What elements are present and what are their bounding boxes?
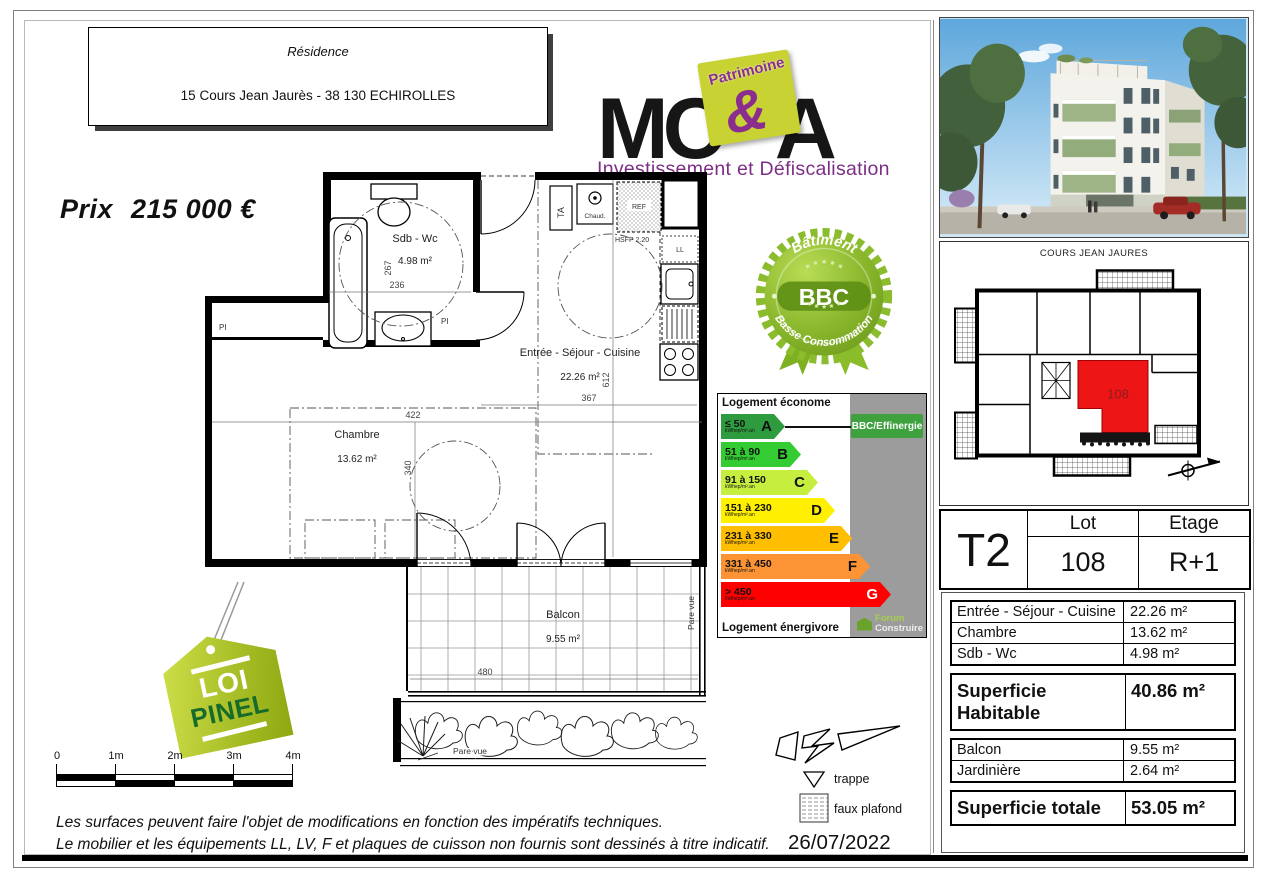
balcony-doors bbox=[417, 513, 692, 567]
table-row: Superficie Habitable 40.86 m² bbox=[952, 675, 1234, 729]
svg-text:4.98 m²: 4.98 m² bbox=[398, 256, 433, 267]
annex-surfaces-group: Balcon 9.55 m² Jardinière 2.64 m² bbox=[950, 738, 1236, 783]
lot-value: 108 bbox=[1027, 537, 1138, 588]
fixture-labels: TA Chaud. REF HSFP 2.20 LL PI PI Pare vu… bbox=[219, 204, 696, 756]
energy-connector-line bbox=[785, 426, 851, 428]
jardiniere bbox=[397, 701, 706, 766]
svg-text:TA: TA bbox=[556, 207, 566, 218]
energy-bar-d: 151 à 230kWhep/m².anD bbox=[721, 498, 835, 523]
svg-text:Pare vue: Pare vue bbox=[686, 596, 696, 630]
svg-text:236: 236 bbox=[389, 280, 404, 290]
scale-tick bbox=[233, 764, 234, 774]
mca-logo-letters: MCPatrimoine&A bbox=[597, 56, 912, 152]
energy-bars: ≤ 50kWhep/m².anA 51 à 90kWhep/m².anB 91 … bbox=[721, 414, 891, 610]
scale-label: 4m bbox=[285, 750, 300, 762]
footer-line1: Les surfaces peuvent faire l'objet de mo… bbox=[56, 812, 770, 834]
mca-logo: MCPatrimoine&A Investissement et Défisca… bbox=[597, 56, 912, 181]
svg-text:Balcon: Balcon bbox=[546, 609, 580, 621]
unit-type: T2 bbox=[941, 511, 1027, 588]
svg-text:LL: LL bbox=[676, 247, 684, 254]
house-icon bbox=[857, 618, 872, 631]
street-label: COURS JEAN JAURES bbox=[940, 248, 1248, 259]
svg-text:267: 267 bbox=[383, 260, 393, 275]
svg-text:PI: PI bbox=[219, 323, 227, 332]
entry-door bbox=[481, 171, 535, 234]
lot-header: Lot bbox=[1027, 511, 1138, 537]
etage-header: Etage bbox=[1138, 511, 1249, 537]
residence-address-box: Résidence 15 Cours Jean Jaurès - 38 130 … bbox=[88, 27, 548, 126]
scale-label: 0 bbox=[54, 750, 60, 762]
bbc-effinergie-badge: BBC/Effinergie bbox=[851, 414, 923, 438]
logo-mc-text: MC bbox=[597, 81, 719, 177]
surface-table: Entrée - Séjour - Cuisine 22.26 m² Chamb… bbox=[941, 592, 1245, 853]
scale-segment bbox=[174, 780, 234, 787]
scale-tick bbox=[115, 764, 116, 774]
bathroom-door bbox=[476, 292, 524, 340]
tag-hole bbox=[205, 644, 216, 655]
svg-text:612: 612 bbox=[601, 372, 611, 387]
svg-text:Sdb - Wc: Sdb - Wc bbox=[392, 233, 438, 245]
logo-patrimoine-tile: Patrimoine& bbox=[697, 49, 801, 146]
brochure-page: Résidence 15 Cours Jean Jaurès - 38 130 … bbox=[0, 0, 1269, 881]
energy-bar-b: 51 à 90kWhep/m².anB bbox=[721, 442, 801, 467]
energy-title-bottom: Logement énergivore bbox=[722, 622, 839, 634]
scale-segment bbox=[115, 780, 175, 787]
energy-bar-g: > 450kWhep/m².anG bbox=[721, 582, 891, 607]
energy-rating-chart: Logement économe ≤ 50kWhep/m².anA 51 à 9… bbox=[717, 393, 927, 638]
table-row: Entrée - Séjour - Cuisine 22.26 m² bbox=[952, 602, 1234, 622]
pinel-tag-strings bbox=[150, 580, 310, 650]
svg-text:Chambre: Chambre bbox=[334, 429, 379, 441]
table-row: Balcon 9.55 m² bbox=[952, 740, 1234, 760]
north-arrow-icon bbox=[776, 726, 900, 763]
residence-label: Résidence bbox=[89, 44, 547, 59]
scale-tick bbox=[174, 764, 175, 774]
scale-bar: 0 1m 2m 3m 4m bbox=[55, 750, 300, 792]
room-labels: Sdb - Wc 4.98 m² Entrée - Séjour - Cuisi… bbox=[334, 233, 640, 645]
svg-text:HSFP 2.20: HSFP 2.20 bbox=[615, 237, 649, 244]
footer-disclaimer: Les surfaces peuvent faire l'objet de mo… bbox=[56, 812, 770, 856]
svg-text:422: 422 bbox=[405, 410, 420, 420]
scale-label: 2m bbox=[167, 750, 182, 762]
unit-summary-table: T2 Lot Etage 108 R+1 bbox=[939, 509, 1251, 590]
footer-line2: Le mobilier et les équipements LL, LV, F… bbox=[56, 834, 770, 856]
floor-overview-plan: 108 bbox=[942, 260, 1242, 500]
residence-address: 15 Cours Jean Jaurès - 38 130 ECHIROLLES bbox=[89, 88, 547, 103]
scale-tick bbox=[56, 764, 57, 774]
floor-overview-box: COURS JEAN JAURES 108 bbox=[939, 241, 1249, 506]
table-row: Chambre 13.62 m² bbox=[952, 622, 1234, 643]
energy-bar-f: 331 à 450kWhep/m².anF bbox=[721, 554, 870, 579]
scale-label: 3m bbox=[226, 750, 241, 762]
energy-bar-e: 231 à 330kWhep/m².anE bbox=[721, 526, 852, 551]
forum-construire-logo: ForumConstruire bbox=[857, 614, 923, 634]
svg-text:480: 480 bbox=[477, 667, 492, 677]
scale-segment bbox=[56, 780, 116, 787]
balcony bbox=[406, 567, 706, 697]
svg-text:Pare vue: Pare vue bbox=[453, 746, 487, 756]
svg-text:Entrée - Séjour - Cuisine: Entrée - Séjour - Cuisine bbox=[520, 347, 640, 359]
faux-plafond-label: faux plafond bbox=[834, 802, 902, 816]
table-row: Superficie totale 53.05 m² bbox=[952, 792, 1234, 824]
table-row: Jardinière 2.64 m² bbox=[952, 760, 1234, 781]
price-label: Prix bbox=[60, 194, 113, 224]
trappe-icon bbox=[804, 772, 824, 787]
energy-bar-c: 91 à 150kWhep/m².anC bbox=[721, 470, 818, 495]
scale-tick bbox=[292, 764, 293, 774]
building-render bbox=[940, 18, 1246, 235]
energy-bar-a: ≤ 50kWhep/m².anA bbox=[721, 414, 785, 439]
bbc-badge: Bâtiment ★ ★ ★ ★ ★ BBC ★ ★ ★ ★ ★ Basse C… bbox=[751, 226, 897, 378]
svg-text:PI: PI bbox=[441, 317, 449, 326]
logo-ampersand: & bbox=[720, 75, 772, 148]
svg-text:Chaud.: Chaud. bbox=[585, 213, 606, 220]
etage-value: R+1 bbox=[1138, 537, 1249, 588]
svg-text:13.62 m²: 13.62 m² bbox=[337, 454, 377, 465]
scale-label: 1m bbox=[108, 750, 123, 762]
plan-date: 26/07/2022 bbox=[788, 831, 891, 855]
building-photo bbox=[939, 17, 1249, 238]
compass-icon bbox=[1168, 458, 1220, 481]
plan-legend: trappe faux plafond bbox=[772, 720, 942, 828]
energy-title-top: Logement économe bbox=[722, 397, 831, 409]
table-row: Sdb - Wc 4.98 m² bbox=[952, 643, 1234, 664]
faux-plafond-icon bbox=[800, 794, 828, 822]
svg-text:367: 367 bbox=[581, 393, 596, 403]
unit-number: 108 bbox=[1107, 387, 1129, 402]
scale-segment bbox=[233, 780, 293, 787]
total-surface-group: Superficie totale 53.05 m² bbox=[950, 790, 1236, 826]
room-surfaces-group: Entrée - Séjour - Cuisine 22.26 m² Chamb… bbox=[950, 600, 1236, 666]
svg-text:REF: REF bbox=[632, 204, 646, 211]
habitable-surface-group: Superficie Habitable 40.86 m² bbox=[950, 673, 1236, 731]
svg-text:340: 340 bbox=[403, 460, 413, 475]
svg-text:9.55 m²: 9.55 m² bbox=[546, 634, 581, 645]
svg-text:22.26 m²: 22.26 m² bbox=[560, 372, 600, 383]
trappe-label: trappe bbox=[834, 772, 869, 786]
